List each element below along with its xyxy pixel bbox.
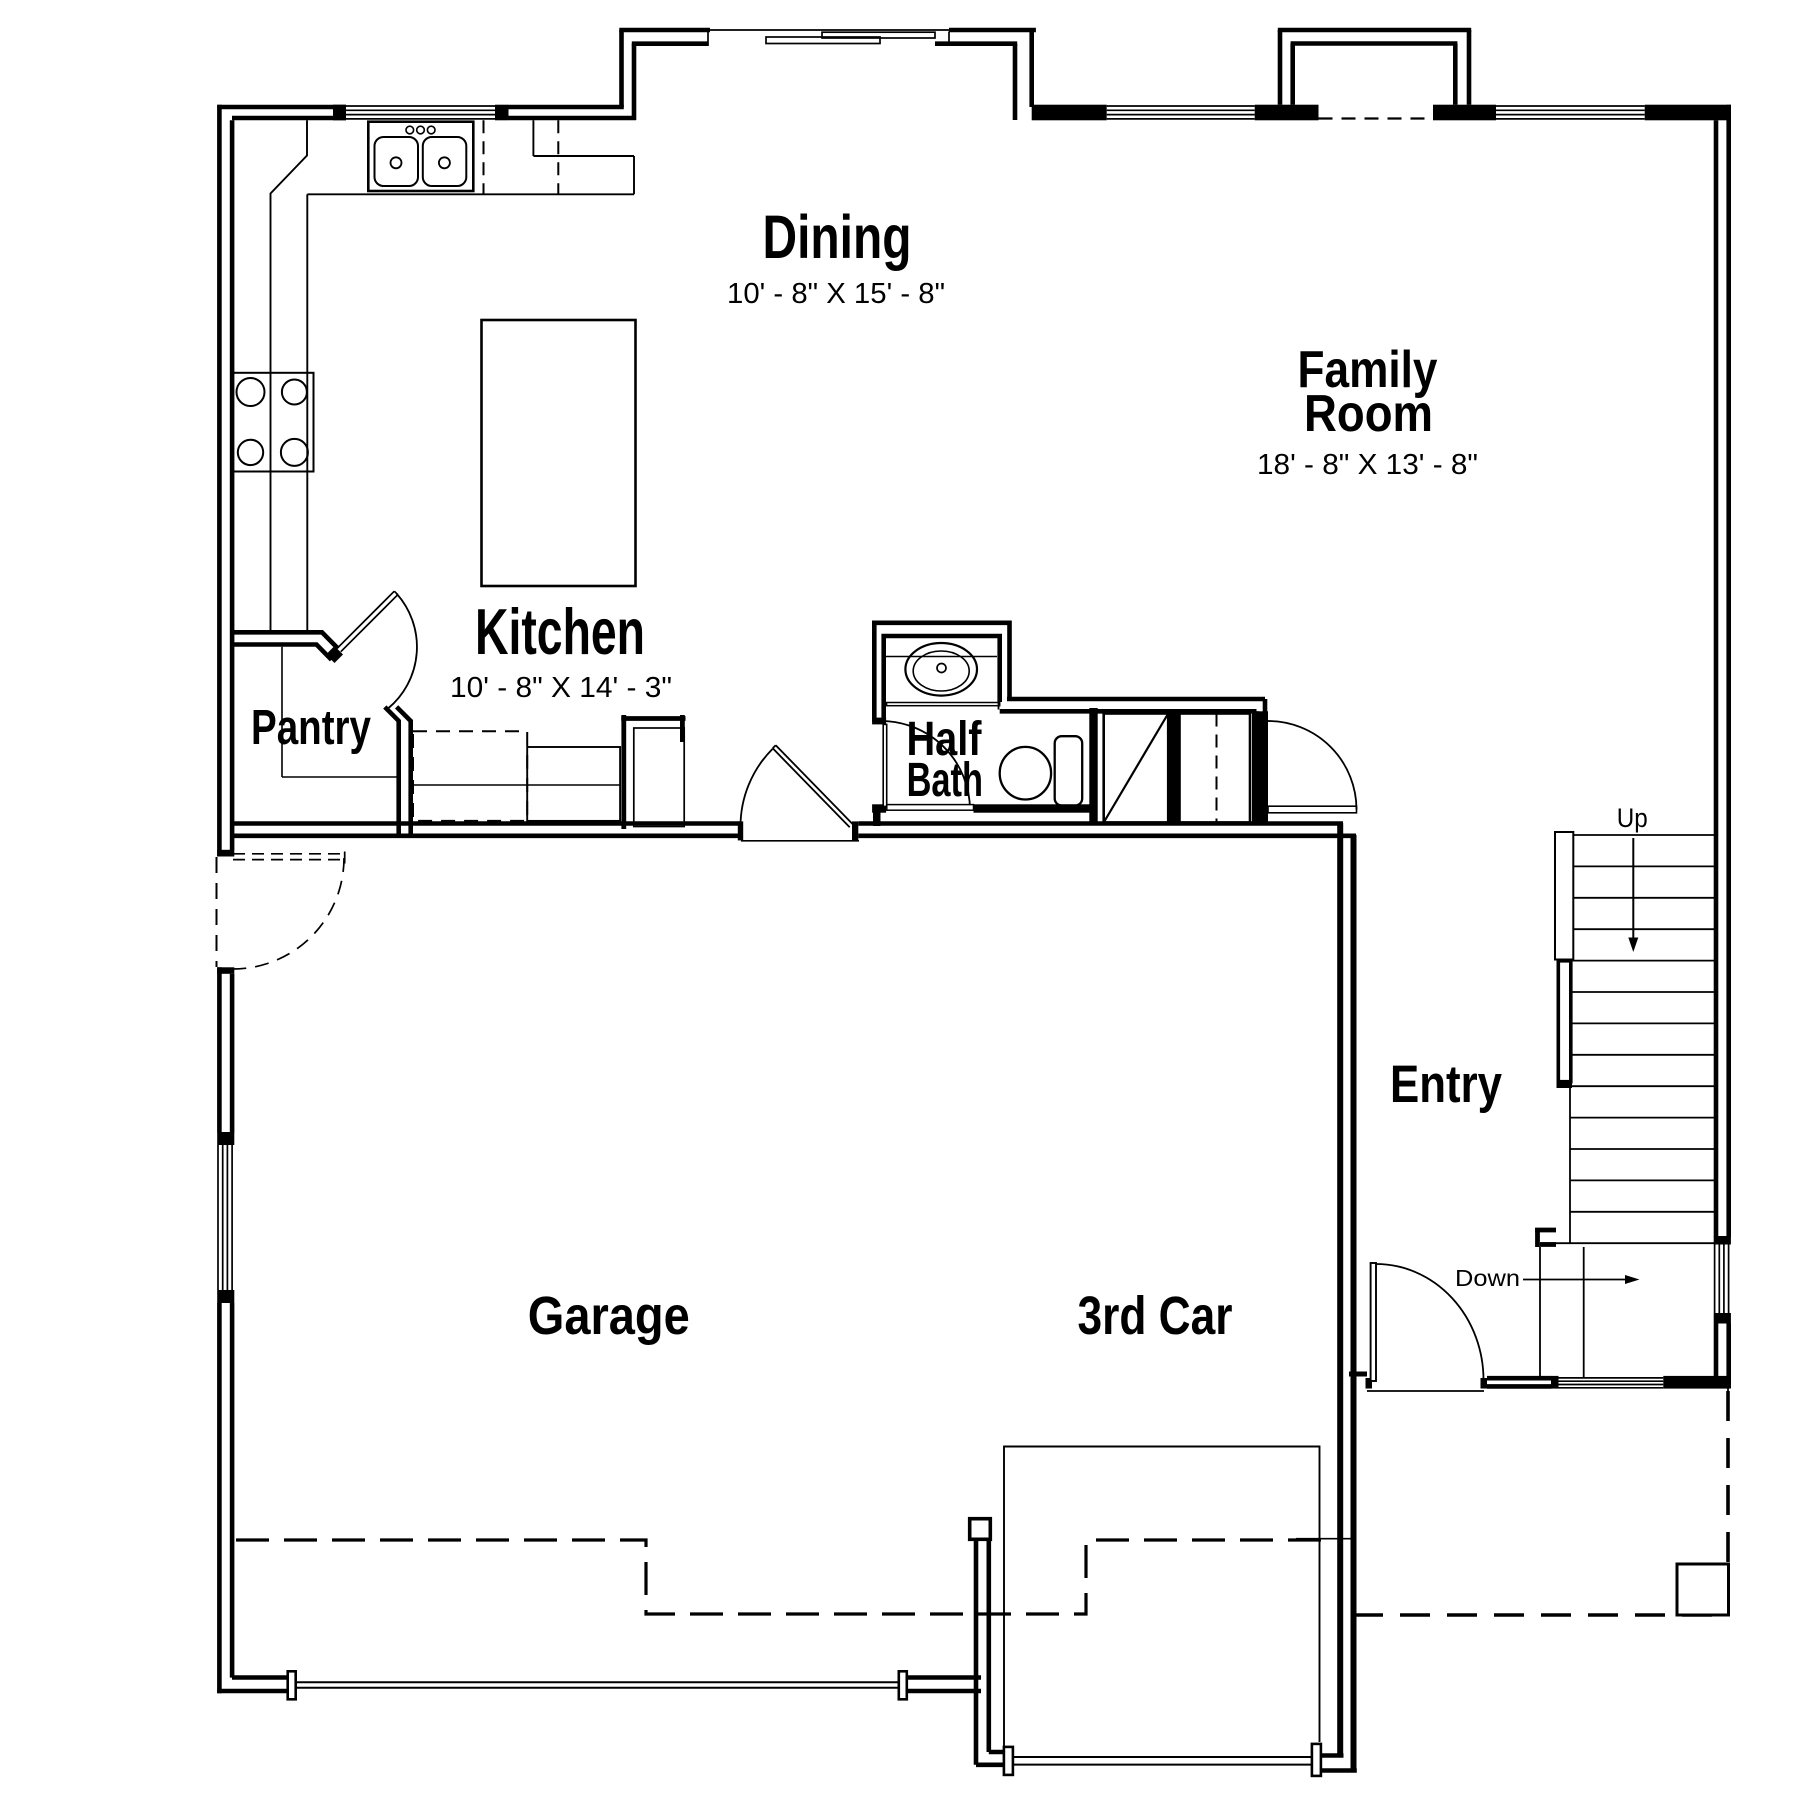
svg-text:Down: Down [1455,1265,1520,1291]
svg-text:Up: Up [1617,803,1648,833]
svg-text:18' - 8" X 13' - 8": 18' - 8" X 13' - 8" [1257,449,1478,481]
svg-text:Garage: Garage [528,1286,690,1346]
svg-text:10' - 8" X 14' - 3": 10' - 8" X 14' - 3" [450,672,672,704]
svg-text:10' - 8" X 15' - 8": 10' - 8" X 15' - 8" [727,278,945,310]
svg-text:Bath: Bath [907,754,983,807]
svg-text:Room: Room [1304,385,1433,443]
svg-text:3rd Car: 3rd Car [1078,1286,1233,1346]
svg-text:Dining: Dining [763,203,912,271]
svg-text:Entry: Entry [1390,1055,1502,1114]
svg-text:Kitchen: Kitchen [475,595,645,668]
svg-text:Pantry: Pantry [251,701,371,755]
